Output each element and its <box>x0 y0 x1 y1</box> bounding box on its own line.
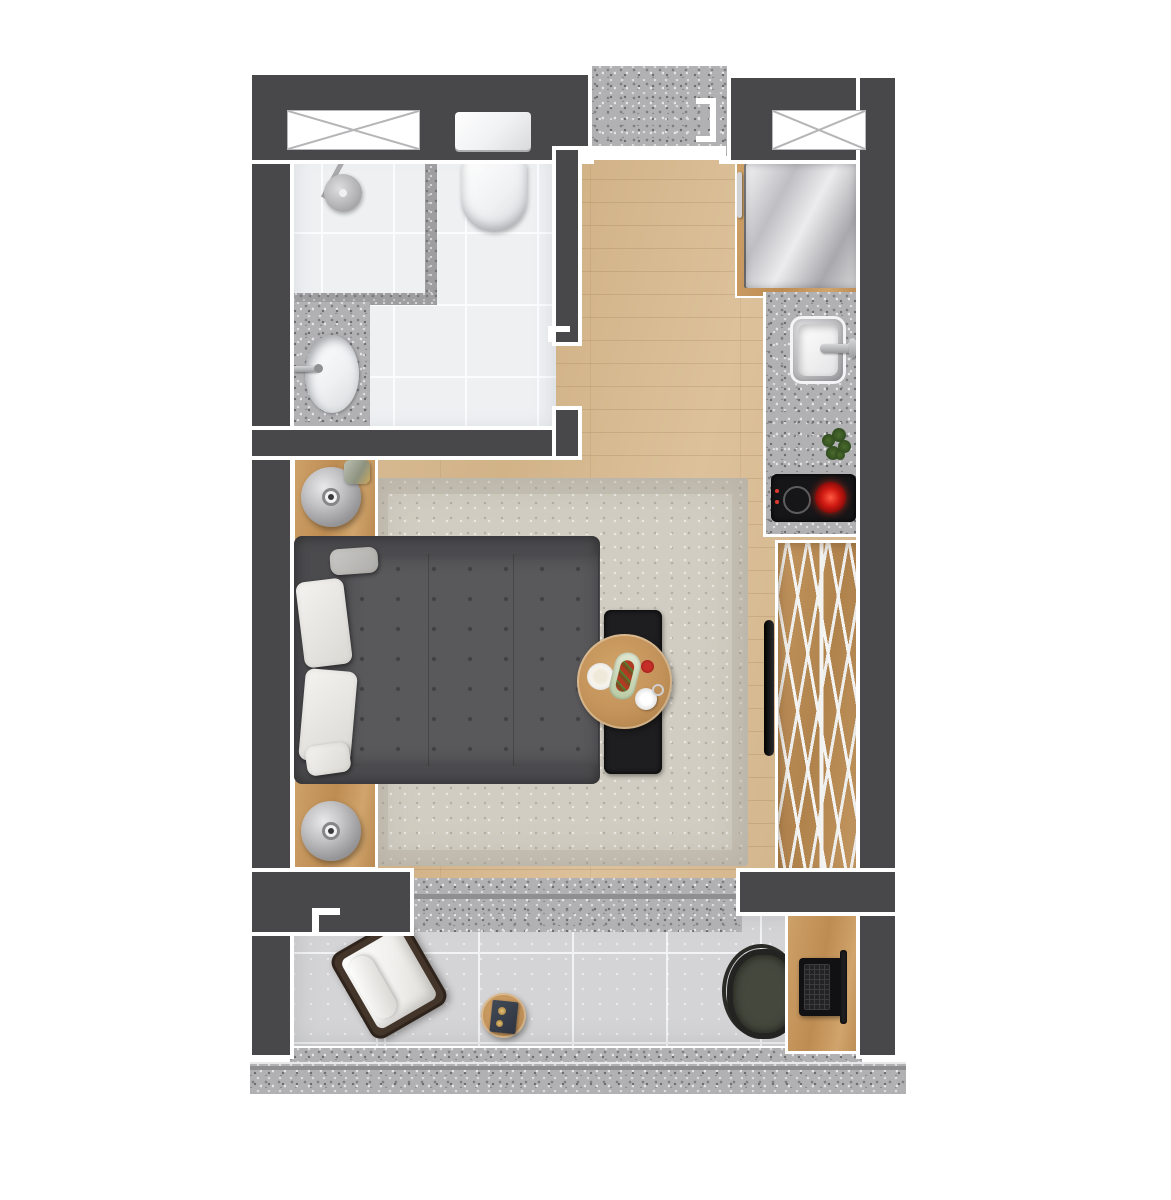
laptop-keyboard <box>804 964 830 1010</box>
laptop <box>799 958 843 1016</box>
window-x-glyph <box>773 111 865 149</box>
entry-door-frame-bracket <box>710 122 716 142</box>
shower-mosaic-border-vertical <box>425 148 437 305</box>
teacup-handle <box>652 684 664 696</box>
lamp-switch <box>328 828 334 834</box>
kitchen-window <box>772 110 866 150</box>
pillow-small-gray <box>329 546 379 575</box>
balcony-threshold-granite <box>408 878 742 932</box>
entry-door-frame-bracket <box>710 98 716 122</box>
balcony-door-bracket <box>312 908 319 934</box>
burner-hot <box>815 482 846 513</box>
book-ornament <box>496 1020 503 1027</box>
wall-bathroom-right-lower <box>556 410 578 456</box>
window-x-glyph <box>288 111 419 149</box>
wall-balcony-right-block <box>740 872 895 912</box>
book-ornament <box>498 1007 506 1015</box>
tv-panel <box>764 620 774 756</box>
fridge-handle <box>737 172 742 218</box>
toilet-cistern <box>455 112 531 150</box>
pillow-large <box>295 577 353 668</box>
book <box>489 1000 518 1035</box>
balcony-door-track <box>408 894 742 899</box>
entry-threshold <box>578 146 726 160</box>
bathroom-door-bracket <box>548 326 556 342</box>
lamp-switch <box>328 494 334 500</box>
pillow-small <box>304 741 352 777</box>
toilet-bowl <box>461 160 527 232</box>
shower-head-nozzle <box>339 189 347 197</box>
red-cup <box>641 660 654 673</box>
burner-ring <box>783 486 811 514</box>
cooktop-indicator <box>775 489 779 493</box>
floor-plan-canvas <box>0 0 1171 1200</box>
balcony-rail-line <box>250 1066 906 1070</box>
wall-balcony-left-block <box>252 872 410 932</box>
wall-bathroom-bottom <box>252 430 578 456</box>
refrigerator <box>744 164 857 288</box>
open-wardrobe <box>775 540 868 882</box>
laptop-screen <box>840 950 847 1024</box>
herb-plant <box>818 426 854 462</box>
mattress <box>344 554 600 766</box>
bathroom-faucet-knob <box>314 364 323 373</box>
cooktop-indicator <box>775 500 779 504</box>
kitchen-faucet-handle <box>849 338 856 358</box>
wall-bathroom-right-upper <box>556 150 578 342</box>
bathroom-window <box>287 110 420 150</box>
decor-bottle <box>344 460 370 484</box>
bathroom-sink <box>305 335 359 413</box>
